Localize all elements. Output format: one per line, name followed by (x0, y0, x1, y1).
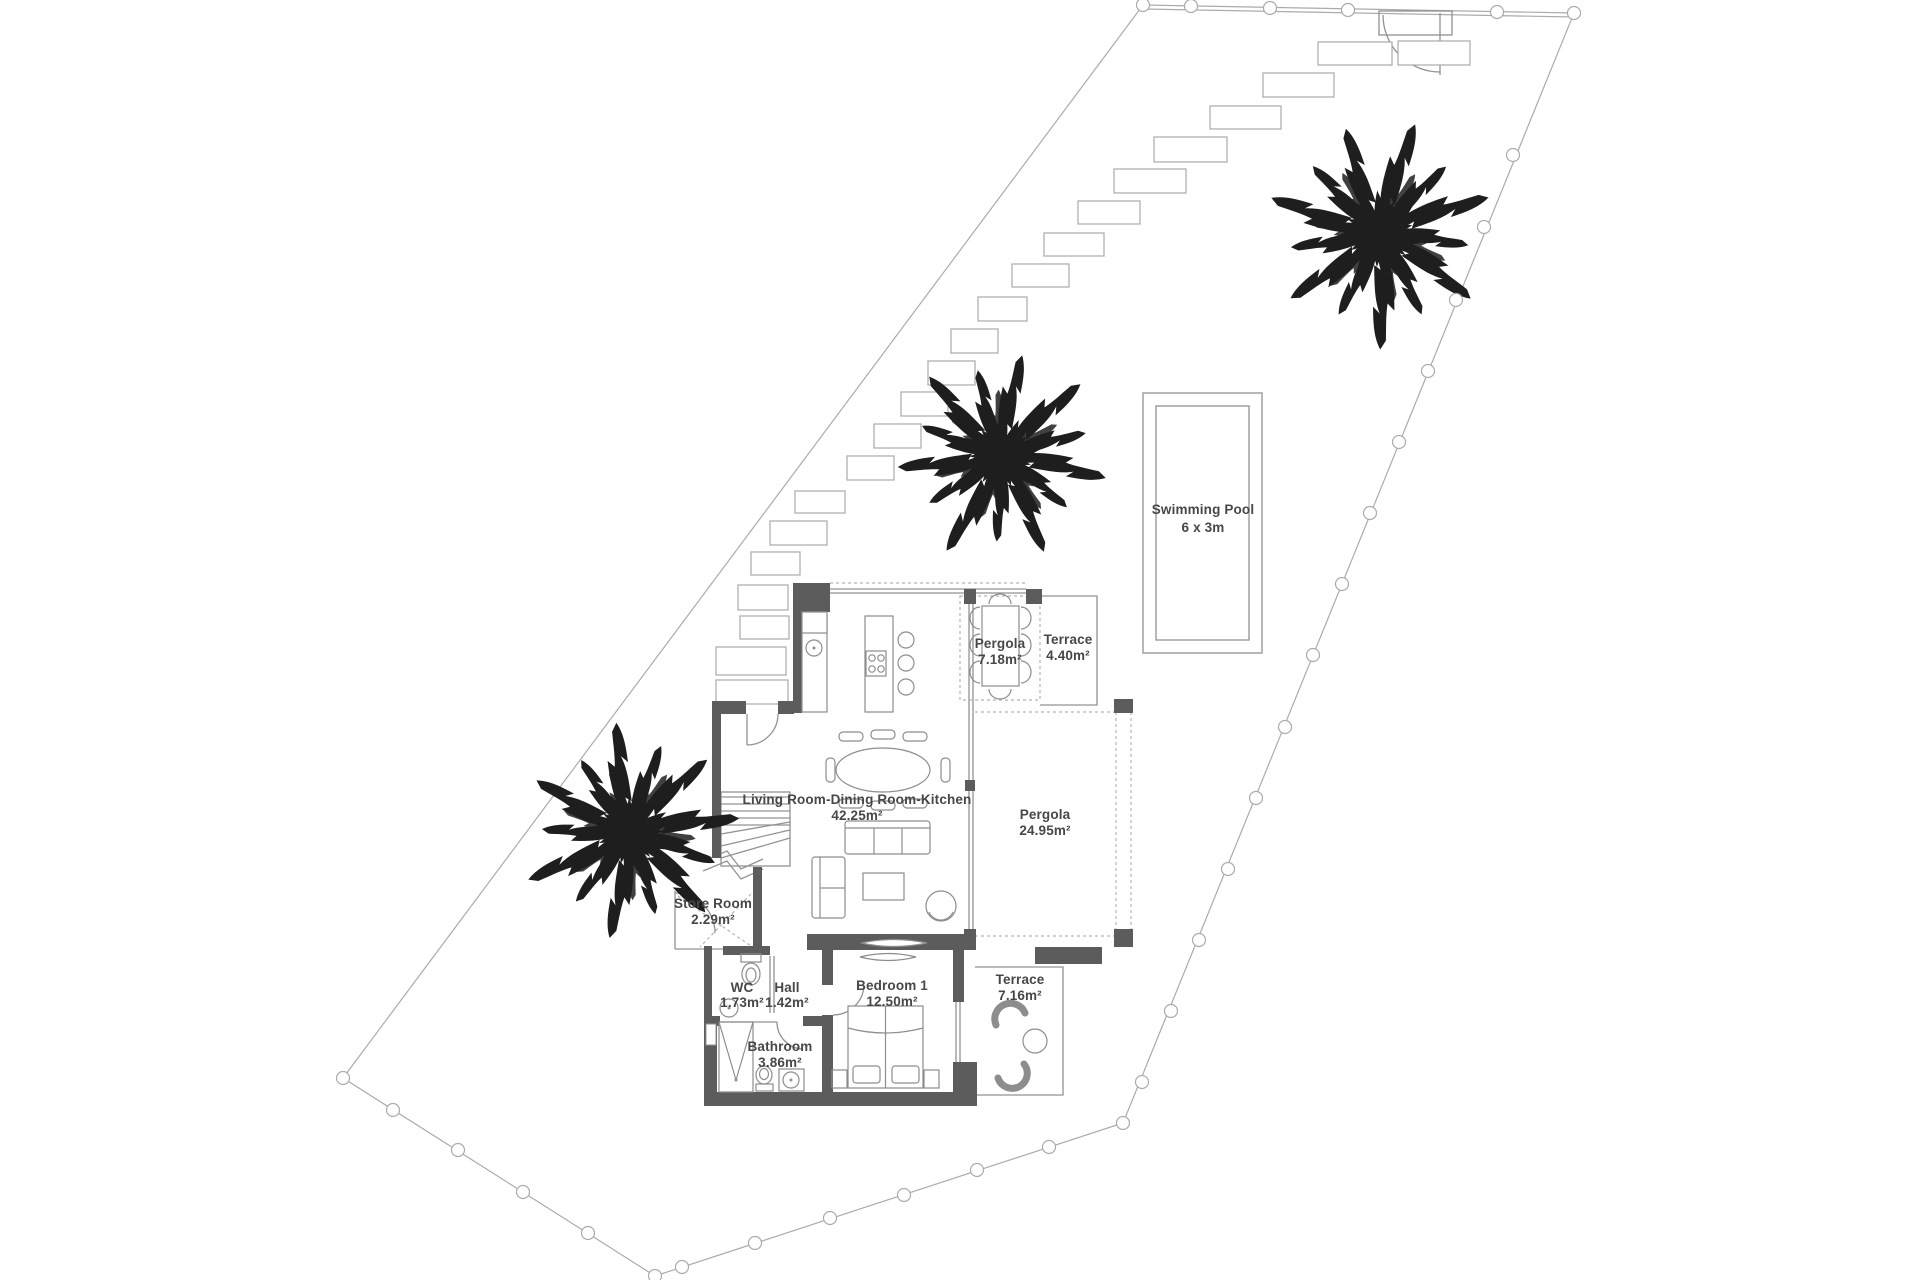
label-pergola-small-area: 7.18m² (978, 652, 1022, 667)
sofa-small (812, 857, 845, 918)
perimeter-fence (1143, 9, 1574, 17)
label-wc: WC (731, 980, 754, 995)
label-bedroom-1-area: 12.50m² (866, 994, 918, 1009)
terrace-table (1023, 1029, 1047, 1053)
label-swimming-pool-area: 6 x 3m (1182, 520, 1225, 535)
label-living-kitchen-area: 42.25m² (831, 808, 883, 823)
label-living-kitchen: Living Room-Dining Room-Kitchen (743, 792, 972, 807)
label-terrace-bedroom: Terrace (996, 972, 1045, 987)
armchair (926, 891, 956, 921)
floor-plan: Living Room-Dining Room-Kitchen 42.25m² … (0, 0, 1920, 1280)
bed (832, 1006, 939, 1088)
bathroom-sink (779, 1069, 804, 1091)
label-bathroom-area: 3.86m² (758, 1055, 802, 1070)
bar-stool (898, 655, 914, 671)
shower-niche (706, 1024, 716, 1045)
label-pergola-small: Pergola (975, 636, 1026, 651)
label-terrace-small-area: 4.40m² (1046, 648, 1090, 663)
nightstand (832, 1070, 847, 1088)
entrance-door-arc (747, 714, 778, 745)
label-store-room-area: 2.29m² (691, 912, 735, 927)
lounge-chair (995, 1003, 1025, 1025)
lounge-chair (998, 1064, 1027, 1088)
kitchen-counter (802, 612, 827, 712)
coffee-table (863, 873, 904, 900)
kitchen-island (865, 616, 914, 712)
bar-stool (898, 679, 914, 695)
label-store-room: Store Room (674, 896, 752, 911)
label-hall: Hall (774, 980, 799, 995)
label-bedroom-1: Bedroom 1 (856, 978, 928, 993)
label-wc-area: 1.73m² (720, 995, 764, 1010)
sofa-large (845, 821, 930, 854)
label-hall-area: 1.42m² (765, 995, 809, 1010)
label-terrace-bedroom-area: 7.16m² (998, 988, 1042, 1003)
label-pergola-large-area: 24.95m² (1019, 823, 1071, 838)
nightstand (924, 1070, 939, 1088)
palm-tree-icon (1249, 102, 1507, 366)
label-terrace-small: Terrace (1044, 632, 1093, 647)
bar-stool (898, 632, 914, 648)
label-swimming-pool: Swimming Pool (1152, 502, 1254, 517)
fridge (802, 612, 827, 633)
label-pergola-large: Pergola (1020, 807, 1071, 822)
label-bathroom: Bathroom (748, 1039, 813, 1054)
